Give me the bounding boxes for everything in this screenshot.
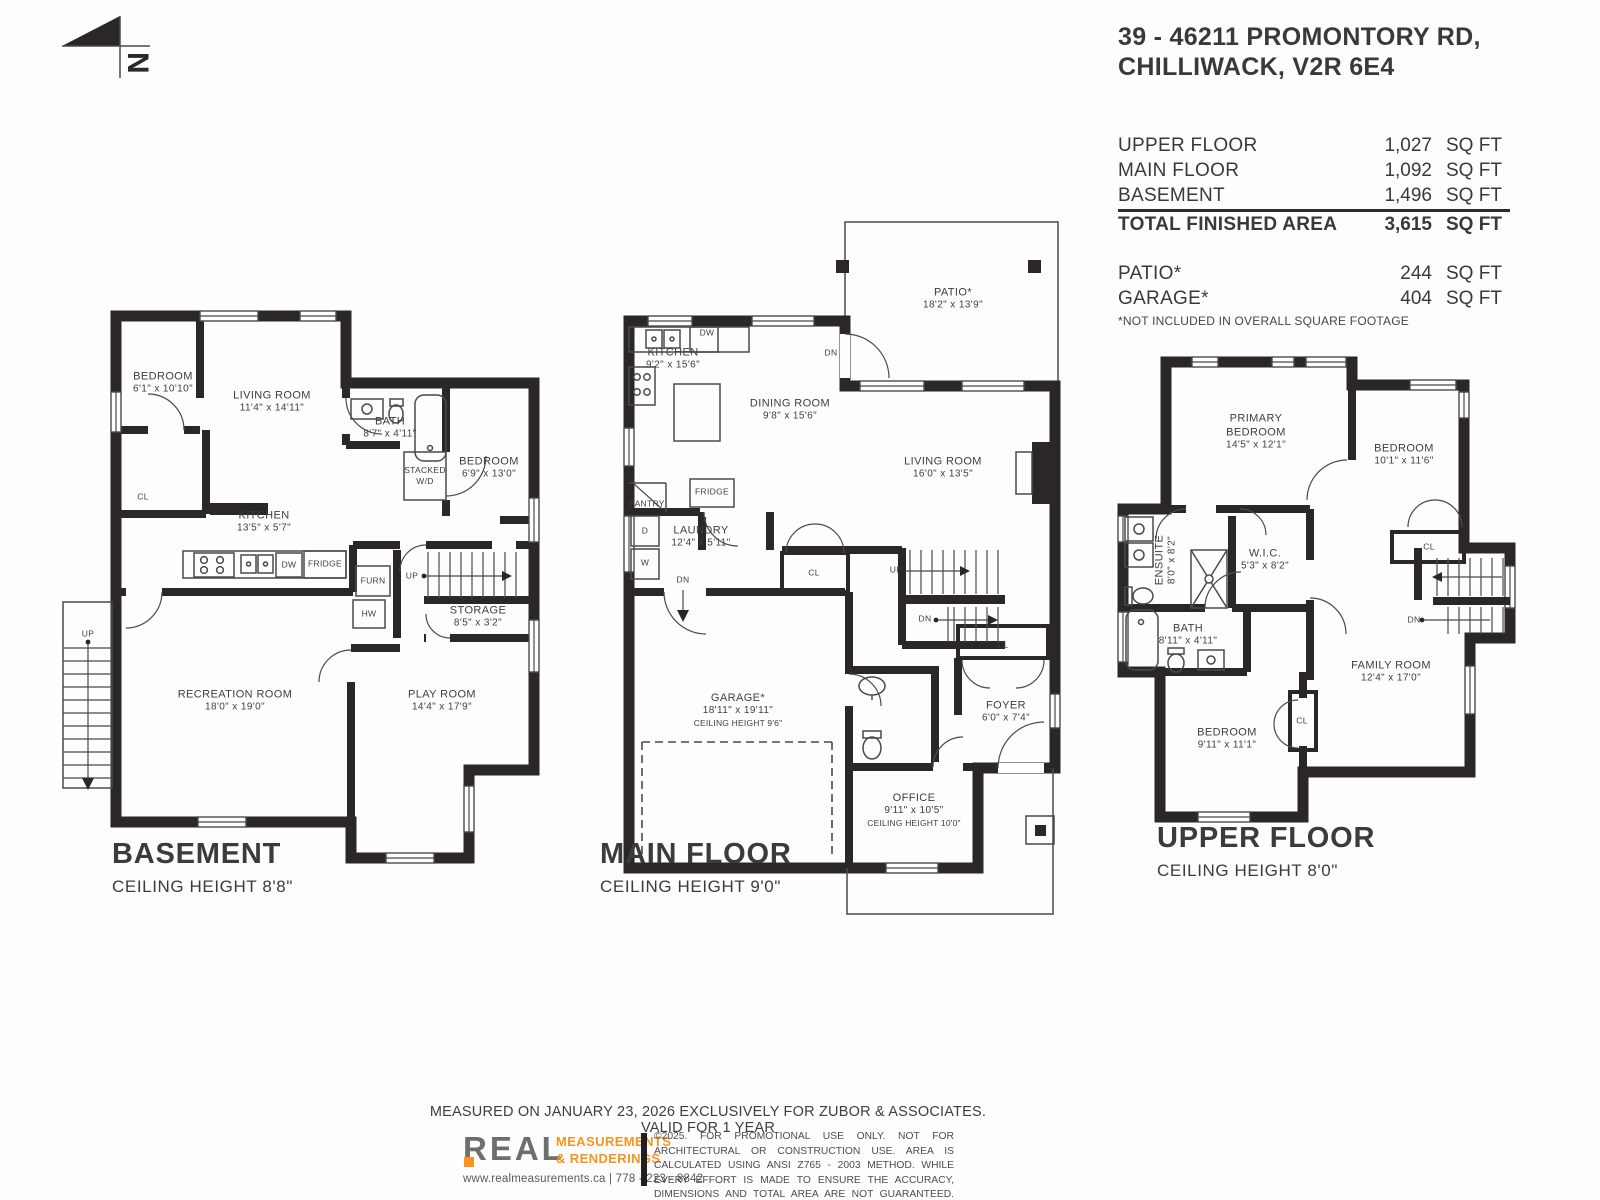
svg-text:N: N <box>121 52 154 74</box>
table-row: GARAGE* 404 SQ FT <box>1118 286 1510 311</box>
row-label: TOTAL FINISHED AREA <box>1118 212 1362 237</box>
upper-floor-plan <box>1118 357 1515 822</box>
main-stairs <box>901 550 1005 642</box>
fixture-label: FURN <box>361 576 386 587</box>
address-line2: CHILLIWACK, V2R 6E4 <box>1118 52 1481 82</box>
row-unit: SQ FT <box>1432 212 1510 237</box>
room-label: FOYER6'0" x 7'4" <box>982 699 1030 726</box>
main-floor-plan <box>624 222 1060 914</box>
room-label: STORAGE8'5" x 3'2" <box>450 604 506 631</box>
porch-outline <box>847 768 1054 914</box>
row-value: 1,496 <box>1362 183 1432 208</box>
room-label: BATH8'7" x 4'11" <box>363 415 416 442</box>
row-label: BASEMENT <box>1118 183 1362 208</box>
room-label: KITCHEN13'5" x 5'7" <box>237 509 291 536</box>
room-label: BATH8'11" x 4'11" <box>1159 622 1218 649</box>
row-unit: SQ FT <box>1432 133 1510 158</box>
ceiling-height: CEILING HEIGHT 8'8" <box>112 877 293 897</box>
row-value: 1,027 <box>1362 133 1432 158</box>
room-label: BEDROOM9'11" x 11'1" <box>1197 726 1257 753</box>
fixture-label: FRIDGE <box>695 487 729 498</box>
room-label: PLAY ROOM14'4" x 17'9" <box>408 688 476 715</box>
fixture-label: HW <box>362 609 377 620</box>
row-unit: SQ FT <box>1432 183 1510 208</box>
room-label: LAUNDRY12'4" x 5'11" <box>671 524 730 551</box>
fixture-label: CL <box>1423 542 1434 553</box>
fixture-label: UP <box>890 565 902 576</box>
row-value: 3,615 <box>1362 212 1432 237</box>
row-label: UPPER FLOOR <box>1118 133 1362 158</box>
room-label: RECREATION ROOM18'0" x 19'0" <box>178 688 293 715</box>
room-label: DINING ROOM9'8" x 15'6" <box>750 397 830 424</box>
logo-orange-square <box>464 1157 474 1167</box>
ceiling-height: CEILING HEIGHT 8'0" <box>1157 861 1375 881</box>
fixture-label: STACKEDW/D <box>404 465 446 487</box>
room-label: LIVING ROOM11'4" x 14'11" <box>233 389 311 416</box>
header-address: 39 - 46211 PROMONTORY RD, CHILLIWACK, V2… <box>1118 22 1481 82</box>
room-label: FAMILY ROOM12'4" x 17'0" <box>1351 659 1431 686</box>
row-unit: SQ FT <box>1432 158 1510 183</box>
upper-stairs <box>1420 558 1510 634</box>
room-label: GARAGE*18'11" x 19'11"CEILING HEIGHT 9'6… <box>694 691 783 729</box>
room-label: LIVING ROOM16'0" x 13'5" <box>904 455 982 482</box>
room-label: OFFICE9'11" x 10'5"CEILING HEIGHT 10'0" <box>867 791 961 829</box>
fixture-label: UP <box>82 629 94 640</box>
area-footnote: *NOT INCLUDED IN OVERALL SQUARE FOOTAGE <box>1118 314 1510 328</box>
room-label: W.I.C.5'3" x 8'2" <box>1241 547 1289 574</box>
basement-stairs <box>422 552 516 598</box>
fixture-label: DN <box>1408 615 1421 626</box>
table-row: UPPER FLOOR 1,027 SQ FT <box>1118 133 1510 158</box>
room-label: PRIMARYBEDROOM14'5" x 12'1" <box>1226 412 1286 453</box>
fixture-label: CL <box>1296 716 1307 727</box>
floor-title-basement: BASEMENT CEILING HEIGHT 8'8" <box>112 838 293 897</box>
floor-title: BASEMENT <box>112 838 293 871</box>
row-unit: SQ FT <box>1432 286 1510 311</box>
row-unit: SQ FT <box>1432 261 1510 286</box>
floor-title-upper: UPPER FLOOR CEILING HEIGHT 8'0" <box>1157 822 1375 881</box>
fireplace-icon <box>1016 442 1056 504</box>
fixture-label: FRIDGE <box>308 559 342 570</box>
window-icons <box>1118 357 1515 822</box>
fixture-label: W <box>641 558 649 569</box>
row-value: 244 <box>1362 261 1432 286</box>
fixture-label: DW <box>282 560 297 571</box>
floor-title: UPPER FLOOR <box>1157 822 1375 855</box>
table-row: BASEMENT 1,496 SQ FT <box>1118 183 1510 208</box>
fixture-label: DW <box>700 328 715 339</box>
room-label: KITCHEN9'2" x 15'6" <box>646 346 700 373</box>
row-value: 404 <box>1362 286 1432 311</box>
fixture-label: UP <box>406 571 418 582</box>
row-value: 1,092 <box>1362 158 1432 183</box>
address-line1: 39 - 46211 PROMONTORY RD, <box>1118 22 1481 52</box>
floor-title: MAIN FLOOR <box>600 838 792 871</box>
real-logo: REAL <box>463 1130 565 1168</box>
floor-title-main: MAIN FLOOR CEILING HEIGHT 9'0" <box>600 838 792 897</box>
fixture-label: CL <box>997 640 1008 651</box>
row-label: GARAGE* <box>1118 286 1362 311</box>
footer-divider <box>641 1133 647 1186</box>
powder-room-fixtures-icon <box>859 677 885 759</box>
legal-disclaimer: ©2025. FOR PROMOTIONAL USE ONLY. NOT FOR… <box>654 1130 954 1200</box>
fixture-label: CL <box>137 492 148 503</box>
fixture-label: PANTRY <box>629 499 665 510</box>
floor-plan-sheet: N <box>0 0 1600 1200</box>
room-label: PATIO*18'2" x 13'9" <box>923 286 983 313</box>
table-row: PATIO* 244 SQ FT <box>1118 261 1510 286</box>
room-label: BEDROOM10'1" x 11'6" <box>1374 442 1434 469</box>
fixture-label: D <box>642 526 648 537</box>
fixture-label: DN <box>825 348 838 359</box>
row-label: PATIO* <box>1118 261 1362 286</box>
table-row: MAIN FLOOR 1,092 SQ FT <box>1118 158 1510 183</box>
room-label: ENSUITE8'0" x 8'2" <box>1153 535 1180 585</box>
fixture-label: DN <box>919 614 932 625</box>
row-label: MAIN FLOOR <box>1118 158 1362 183</box>
fixture-label: DN <box>677 575 690 586</box>
ceiling-height: CEILING HEIGHT 9'0" <box>600 877 792 897</box>
area-summary-table: UPPER FLOOR 1,027 SQ FT MAIN FLOOR 1,092… <box>1118 133 1510 328</box>
north-arrow-icon: N <box>62 16 154 78</box>
fixture-label: CL <box>808 568 819 579</box>
table-total-row: TOTAL FINISHED AREA 3,615 SQ FT <box>1118 209 1510 237</box>
room-label: BEDROOM6'9" x 13'0" <box>459 455 519 482</box>
room-label: BEDROOM6'1" x 10'10" <box>133 370 193 397</box>
